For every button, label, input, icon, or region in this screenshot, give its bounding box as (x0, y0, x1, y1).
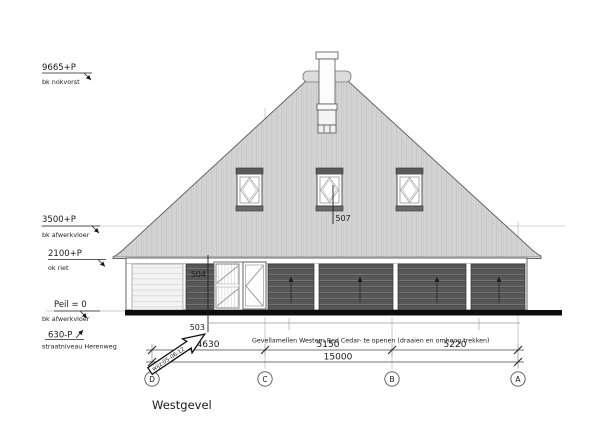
barn-door (214, 262, 266, 310)
revision-arrow: wijz:05-06-12 (145, 327, 209, 378)
grid-bubble-a: A (515, 375, 521, 384)
page-title: Westgevel (152, 398, 212, 412)
revision-text: wijz:05-06-12 (151, 347, 186, 373)
cedar-panel (398, 264, 466, 310)
level-3500: 3500+P bk afwerkvloer (42, 215, 100, 239)
grid-bubbles: D C B A (145, 372, 525, 386)
cedar-panel (471, 264, 525, 310)
label-507: 507 (336, 214, 351, 223)
svg-text:straatniveau Herenweg: straatniveau Herenweg (42, 343, 117, 351)
roof-window-right (396, 168, 423, 211)
level-markers: 9665+P bk nokvorst 3500+P bk afwerkvloer… (42, 63, 117, 351)
facade-wall (126, 258, 527, 310)
cedar-panel (319, 264, 393, 310)
level-peil: Peil = 0 bk afwerkvloer (42, 300, 100, 323)
svg-text:3500+P: 3500+P (42, 215, 76, 225)
light-cladding-panel (132, 264, 183, 310)
roof-window-left (236, 168, 263, 211)
svg-text:bk afwerkvloer: bk afwerkvloer (42, 231, 90, 239)
level-9665: 9665+P bk nokvorst (42, 63, 92, 86)
dim-total: 15000 (324, 353, 353, 363)
ground-line (125, 310, 562, 316)
svg-text:bk nokvorst: bk nokvorst (42, 78, 80, 86)
grid-bubble-c: C (262, 375, 267, 384)
svg-text:2100+P: 2100+P (48, 249, 82, 259)
label-504: 504 (191, 270, 206, 279)
elevation-drawing: 504 503 507 Gevellamellen Western Red Ce… (0, 0, 600, 442)
roof-window-middle (316, 168, 343, 211)
dim-cb: 5150 (317, 340, 340, 350)
svg-text:bk afwerkvloer: bk afwerkvloer (42, 315, 90, 323)
elevation-sheet: 504 503 507 Gevellamellen Western Red Ce… (0, 0, 600, 442)
svg-text:9665+P: 9665+P (42, 63, 76, 73)
level-630: 630-P straatniveau Herenweg (42, 330, 117, 351)
svg-text:630-P: 630-P (48, 331, 72, 341)
grid-bubble-b: B (389, 375, 394, 384)
dim-ba: 5220 (444, 340, 467, 350)
level-2100: 2100+P ok riet (48, 249, 106, 272)
svg-text:ok riet: ok riet (48, 264, 69, 272)
chimney (316, 52, 338, 133)
svg-text:Peil = 0: Peil = 0 (54, 300, 87, 310)
grid-bubble-d: D (149, 375, 155, 384)
label-503: 503 (190, 323, 205, 332)
